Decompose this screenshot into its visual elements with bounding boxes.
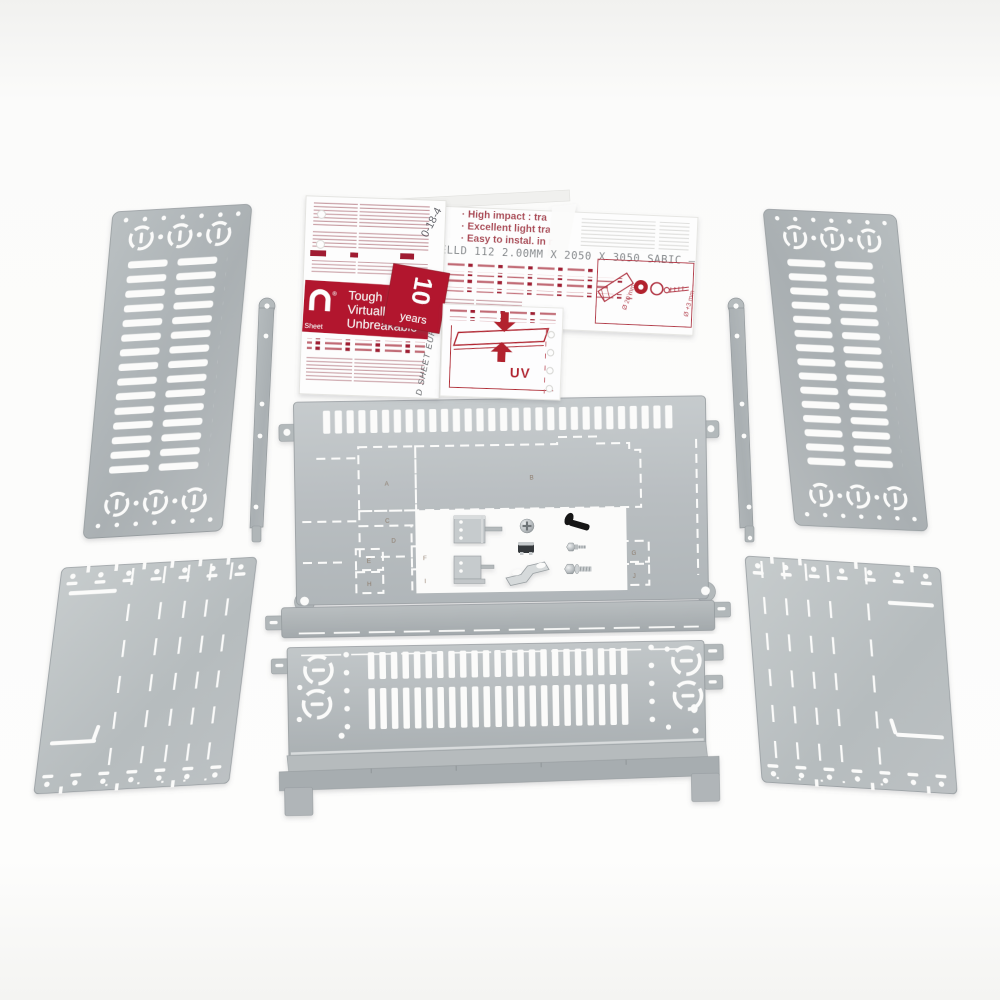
- ten-years-badge: 10 years: [383, 264, 450, 334]
- brand-sub-label: Sheet: [304, 323, 323, 331]
- film-hole: [317, 210, 325, 218]
- rear-rail: [265, 600, 730, 638]
- vent-slot-grid: [108, 253, 228, 478]
- photo-canvas: A B C D E F G H I J: [0, 0, 1000, 1000]
- fineprint-block-1: [313, 202, 430, 230]
- top-knockout-panel: A B C D E F G H I J: [278, 396, 721, 613]
- foot-left: [284, 787, 312, 815]
- right-mounting-strap: [728, 298, 754, 542]
- uv-card: UV: [440, 304, 563, 400]
- knockout-label-j: J: [633, 573, 636, 580]
- bottom-right-fold-plate: [745, 555, 957, 795]
- knockout-label-e: E: [367, 558, 371, 565]
- knockout-label-d: D: [391, 538, 396, 545]
- years-number: 10: [405, 275, 437, 307]
- front-vent-panel: [271, 640, 726, 816]
- phillips-screw-head: [520, 519, 534, 533]
- vent-slot-row-1: [365, 648, 629, 680]
- film-hole: [316, 240, 324, 248]
- knockout-label-f: F: [423, 555, 427, 562]
- film-fineprint-gray: [581, 218, 690, 253]
- film-bullet-list: · High impact : tra · Excellent light tr…: [461, 209, 554, 248]
- bottom-vent-assembly: [265, 600, 734, 816]
- knockout-label-b: B: [530, 474, 534, 481]
- bottom-left-fold-plate: [34, 556, 258, 795]
- fineprint-block-4: [306, 356, 425, 386]
- left-vent-panel: [83, 204, 252, 539]
- knockout-label-g: G: [631, 550, 636, 557]
- knockout-label-h: H: [367, 581, 372, 588]
- left-mounting-strap: [250, 298, 275, 542]
- knockout-label-c: C: [385, 518, 390, 525]
- foot-right: [691, 773, 719, 801]
- right-vent-panel: [763, 209, 928, 531]
- vent-slot-row-2: [366, 684, 631, 730]
- uv-label: UV: [510, 365, 531, 381]
- product-photo-sheet-metal-kit: A B C D E F G H I J: [0, 0, 1000, 1000]
